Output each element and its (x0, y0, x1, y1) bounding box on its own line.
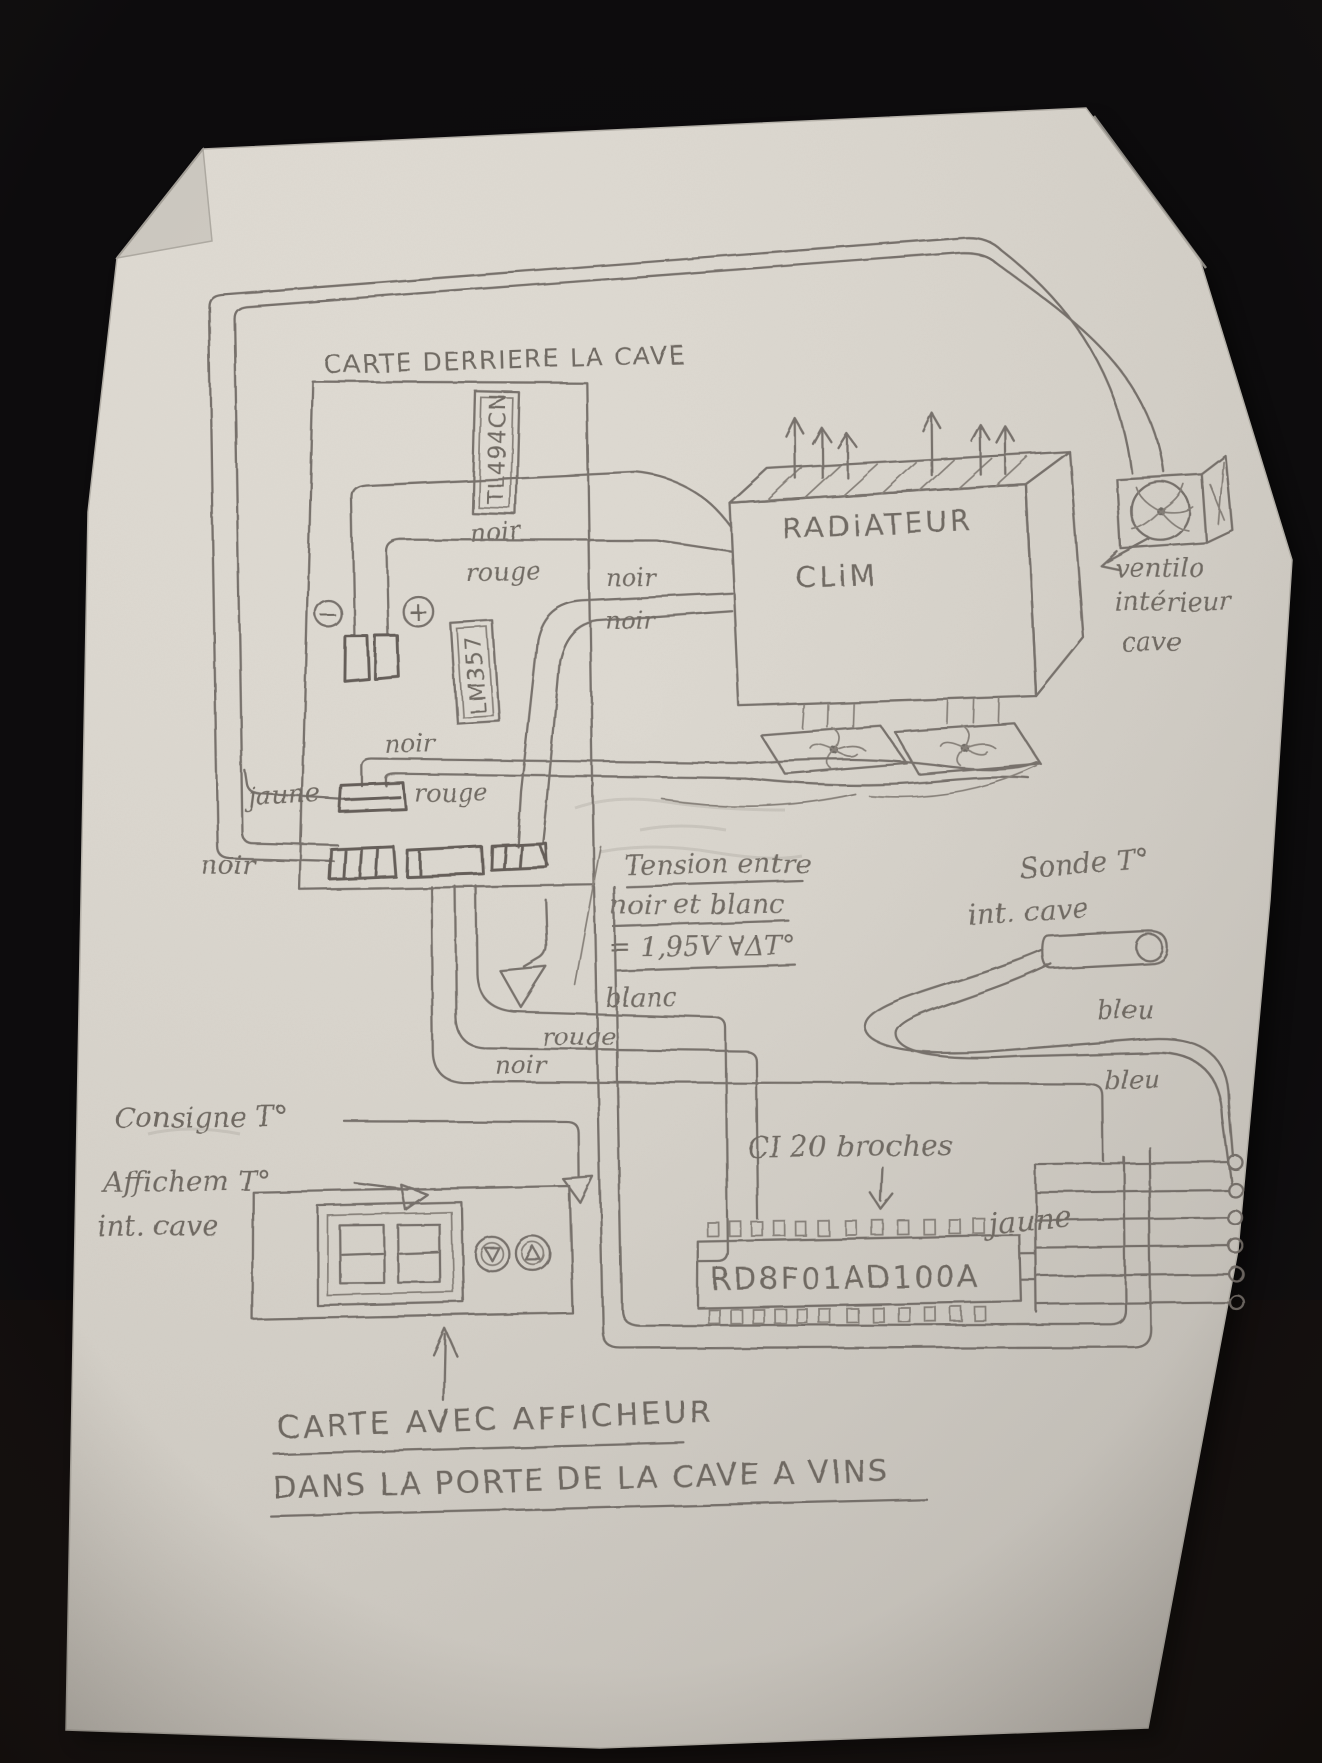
affichage-label-1: Affichem T° (100, 1164, 271, 1199)
fan-caption-3: cave (1121, 628, 1181, 659)
photo-of-schematic: CARTE DERRIERE LA CAVE TL494CN noir roug… (0, 0, 1322, 1763)
voltage-note-line2: noir et blanc (610, 889, 784, 922)
chip-label: RD8F01AD100A (710, 1260, 980, 1298)
wire-label-noir-top: noir (469, 516, 524, 548)
paper (0, 0, 1322, 1763)
minus-terminal-icon: − (315, 600, 341, 628)
plus-glyph: + (407, 597, 429, 627)
radiator-label-2: CLiM (796, 558, 879, 596)
wire-label-bleu-1: bleu (1097, 996, 1154, 1027)
wire-label-rouge-connector: rouge (414, 778, 488, 808)
wire-label-noir-mid-upper: noir (607, 564, 658, 593)
minus-glyph: − (318, 600, 338, 628)
ic-lm357-label: LM357 (462, 635, 492, 715)
plus-terminal-icon: + (403, 596, 433, 627)
fan-caption-1: ventilo (1115, 553, 1205, 584)
affichage-label-2: int. cave (97, 1209, 218, 1243)
wire-label-jaune-left: jaune (243, 779, 322, 814)
wire-label-noir-connector: noir (384, 729, 437, 759)
schematic-photo: CARTE DERRIERE LA CAVE TL494CN noir roug… (0, 0, 1322, 1763)
wire-label-noir-lower: noir (495, 1050, 548, 1080)
wire-label-rouge-lower: rouge (541, 1021, 615, 1051)
paper-grain (0, 0, 1322, 1763)
wire-label-noir-bottom-left: noir (202, 851, 257, 882)
voltage-note-line3: = 1,95V ∀ΔT° (609, 931, 796, 964)
voltage-note-line1: Tension entre (624, 848, 811, 881)
wire-label-noir-mid-lower: noir (605, 606, 656, 635)
wire-label-bleu-2: bleu (1104, 1066, 1161, 1097)
fan-caption-2: intérieur (1115, 587, 1233, 618)
ci-note: CI 20 broches (747, 1128, 953, 1164)
consigne-label: Consigne T° (114, 1100, 288, 1135)
ic-tl494cn-label: TL494CN (483, 392, 512, 505)
wire-label-rouge-top: rouge (466, 556, 541, 588)
